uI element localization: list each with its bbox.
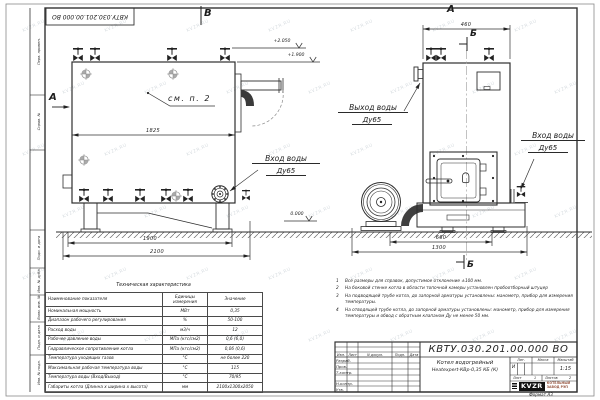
tech-table-cell: 0,6 (6,0) (208, 335, 263, 345)
margin-label-podp-data-1: Подп. и дата (33, 230, 46, 266)
logo-text: KVZR (519, 382, 545, 391)
level-top: +2.050 (266, 40, 298, 45)
note-1: 1Все размеры для справок, допустимое отк… (336, 279, 576, 285)
note-text: На боковой стенке котла в области топочн… (345, 286, 576, 292)
note-4: 4На отводящей трубе котла, до запорной а… (336, 308, 576, 321)
tb-role-prov: Пров. (336, 364, 347, 369)
note-text: На отводящей трубе котла, до запорной ар… (345, 308, 576, 321)
tech-table-cell: м3/ч (163, 326, 208, 336)
inlet-front-callout: Вход воды (521, 132, 585, 141)
tech-header-name: Наименование показателя (46, 293, 163, 307)
note-number: 1 (336, 279, 345, 285)
company-name: КОТЕЛЬНЫЙ ЗАВОД РЭП (547, 382, 570, 389)
view-arrow-label: А (49, 93, 58, 103)
tech-table-cell: Номинальная мощность (46, 307, 163, 317)
title-block-doc-code: КВТУ.030.201.00.000 ВО (421, 344, 576, 355)
tech-table-cell: 2100х1300х2050 (208, 383, 263, 393)
tb-role-tkontr: Т.контр. (336, 370, 352, 375)
notes-list: 1Все размеры для справок, допустимое отк… (336, 279, 576, 321)
tech-table-header-row: Наименование показателя Единицы измерени… (46, 293, 263, 307)
tech-table-cell: Рабочее давление воды (46, 335, 163, 345)
tech-table-cell: МПа (кгс/см2) (163, 345, 208, 355)
tb-role-razrab: Разраб. (336, 358, 351, 363)
section-label-top: Б (470, 30, 477, 39)
tb-role-utv: Утв. (336, 387, 344, 392)
note-number: 4 (336, 308, 345, 321)
note-text: На подводящей трубе котла, до запорной а… (345, 294, 576, 307)
tb-sheets-label: Листов (545, 376, 558, 380)
tech-table-cell: °С (163, 364, 208, 374)
dim-side-overall: 2100 (142, 250, 172, 255)
tech-table-row: Температура воды (Вход/Выход)°С70/95 (46, 373, 263, 383)
tech-table-cell: МВт (163, 307, 208, 317)
section-and-view-marks (52, 6, 467, 269)
tech-table-cell: МПа (кгс/см2) (163, 335, 208, 345)
format-label: Формат А3 (505, 393, 577, 397)
note-number: 2 (336, 286, 345, 292)
note-3: 3На подводящей трубе котла, до запорной … (336, 294, 576, 307)
tech-table-cell: Габариты котла (Длинна х ширина х высота… (46, 383, 163, 393)
tech-header-units: Единицы измерения (163, 293, 208, 307)
dim-front-overall: 1300 (424, 246, 454, 251)
view-label-front: А (447, 5, 456, 15)
tech-table-cell: 70/95 (208, 373, 263, 383)
tb-scale-label: Масштаб (554, 358, 577, 362)
tb-sheet-label: Лист (513, 376, 522, 380)
tech-table-cell: Расход воды (46, 326, 163, 336)
tb-lit-value: И (510, 365, 517, 370)
tech-table-cell: 50-100 (208, 316, 263, 326)
tb-header-podp: Подп. (392, 353, 408, 357)
note-2: 2На боковой стенке котла в области топоч… (336, 286, 576, 292)
tech-header-value: Значение (208, 293, 263, 307)
see-note-callout: см. п. 2 (168, 95, 211, 103)
note-number: 3 (336, 294, 345, 307)
tb-header-data: Дата (408, 353, 420, 357)
outlet-front-dn: Ду65 (352, 117, 392, 125)
dim-front-width: 460 (451, 23, 481, 28)
logo-stripes-icon (512, 383, 517, 390)
tech-table-title: Техническая характеристика (45, 284, 262, 289)
dimension-lines (63, 25, 527, 260)
level-ground: 0.000 (281, 213, 313, 218)
tech-table-row: Номинальная мощностьМВт0,35 (46, 307, 263, 317)
top-stamp-doc-code: КВТУ.030.201.00.000 ВО (46, 8, 134, 25)
inlet-front-dn: Ду65 (528, 145, 568, 153)
tech-table-cell: % (163, 316, 208, 326)
tb-sheets-value: 2 (569, 376, 571, 380)
furnace-door (426, 152, 497, 205)
side-view-valves (73, 48, 250, 203)
tb-header-izm: Изм. (335, 353, 347, 357)
side-view-geometry (63, 62, 283, 232)
tech-table-row: Расход водым3/ч12 (46, 326, 263, 336)
product-name: Котел водогрейный (420, 360, 510, 366)
inlet-side-dn: Ду65 (266, 168, 306, 176)
tb-scale-value: 1:15 (554, 366, 577, 372)
inlet-side-callout: Вход воды (252, 155, 320, 164)
outlet-front-callout: Выход воды (338, 104, 408, 113)
tb-role-nkontr: Н.контр. (336, 381, 353, 386)
tb-sheet-value: 1 (534, 376, 536, 380)
margin-label-inv-dubl: Инв. № дубл. (33, 268, 46, 293)
tech-table-row: Диапазон рабочего регулирования%50-100 (46, 316, 263, 326)
tech-table-row: Температура уходящих газов°Сне более 220 (46, 354, 263, 364)
tech-table-cell: Температура уходящих газов (46, 354, 163, 364)
tech-table-cell: мм (163, 383, 208, 393)
tech-table-row: Максимальная рабочая температура воды°С1… (46, 364, 263, 374)
tech-table: Наименование показателя Единицы измерени… (45, 292, 263, 393)
company-line2: ЗАВОД РЭП (547, 385, 568, 389)
margin-label-sprav-no: Справ. № (33, 95, 46, 148)
tech-table-cell: Гидравлическое сопротивление котла (46, 345, 163, 355)
tb-lit-label: Лит. (510, 358, 532, 362)
level-marks (232, 43, 320, 221)
tech-table-row: Рабочее давление водыМПа (кгс/см2)0,6 (6… (46, 335, 263, 345)
tech-table-cell: 0,35 (208, 307, 263, 317)
tech-table-cell: не более 220 (208, 354, 263, 364)
dim-side-skid: 1900 (135, 237, 165, 242)
tech-table-cell: °С (163, 354, 208, 364)
product-model: Heatexpert-КВр-0,35 КБ (К) (420, 368, 510, 373)
front-view-geometry (361, 50, 528, 260)
inlet-flange-side (212, 186, 228, 202)
tb-header-docnum: N докум. (358, 353, 392, 357)
level-body: +1.900 (280, 54, 312, 59)
engineering-drawing-sheet: { "watermark": {"text": "KVZR.RU"}, "sta… (0, 0, 600, 400)
dim-side-body: 1825 (138, 129, 168, 134)
view-label-side: В (204, 9, 213, 19)
tech-table-cell: Диапазон рабочего регулирования (46, 316, 163, 326)
tb-header-list: Лист (347, 353, 358, 357)
section-label-bottom: Б (467, 261, 474, 270)
tb-mass-label: Масса (532, 358, 554, 362)
margin-label-perv-primen: Перв. примен. (33, 10, 46, 93)
dim-front-base: 660 (426, 236, 456, 241)
tech-table-cell: 115 (208, 364, 263, 374)
note-text: Все размеры для справок, допустимое откл… (345, 279, 576, 285)
tech-table-cell: Температура воды (Вход/Выход) (46, 373, 163, 383)
manufacturer-logo: KVZR КОТЕЛЬНЫЙ ЗАВОД РЭП (512, 382, 570, 391)
tech-table-cell: °С (163, 373, 208, 383)
tech-table-cell: 0,06 (0,6) (208, 345, 263, 355)
tech-table-row: Габариты котла (Длинна х ширина х высота… (46, 383, 263, 393)
blower-fan (361, 183, 401, 231)
tech-table-cell: Максимальная рабочая температура воды (46, 364, 163, 374)
tech-table-row: Гидравлическое сопротивление котлаМПа (к… (46, 345, 263, 355)
tech-table-cell: 12 (208, 326, 263, 336)
